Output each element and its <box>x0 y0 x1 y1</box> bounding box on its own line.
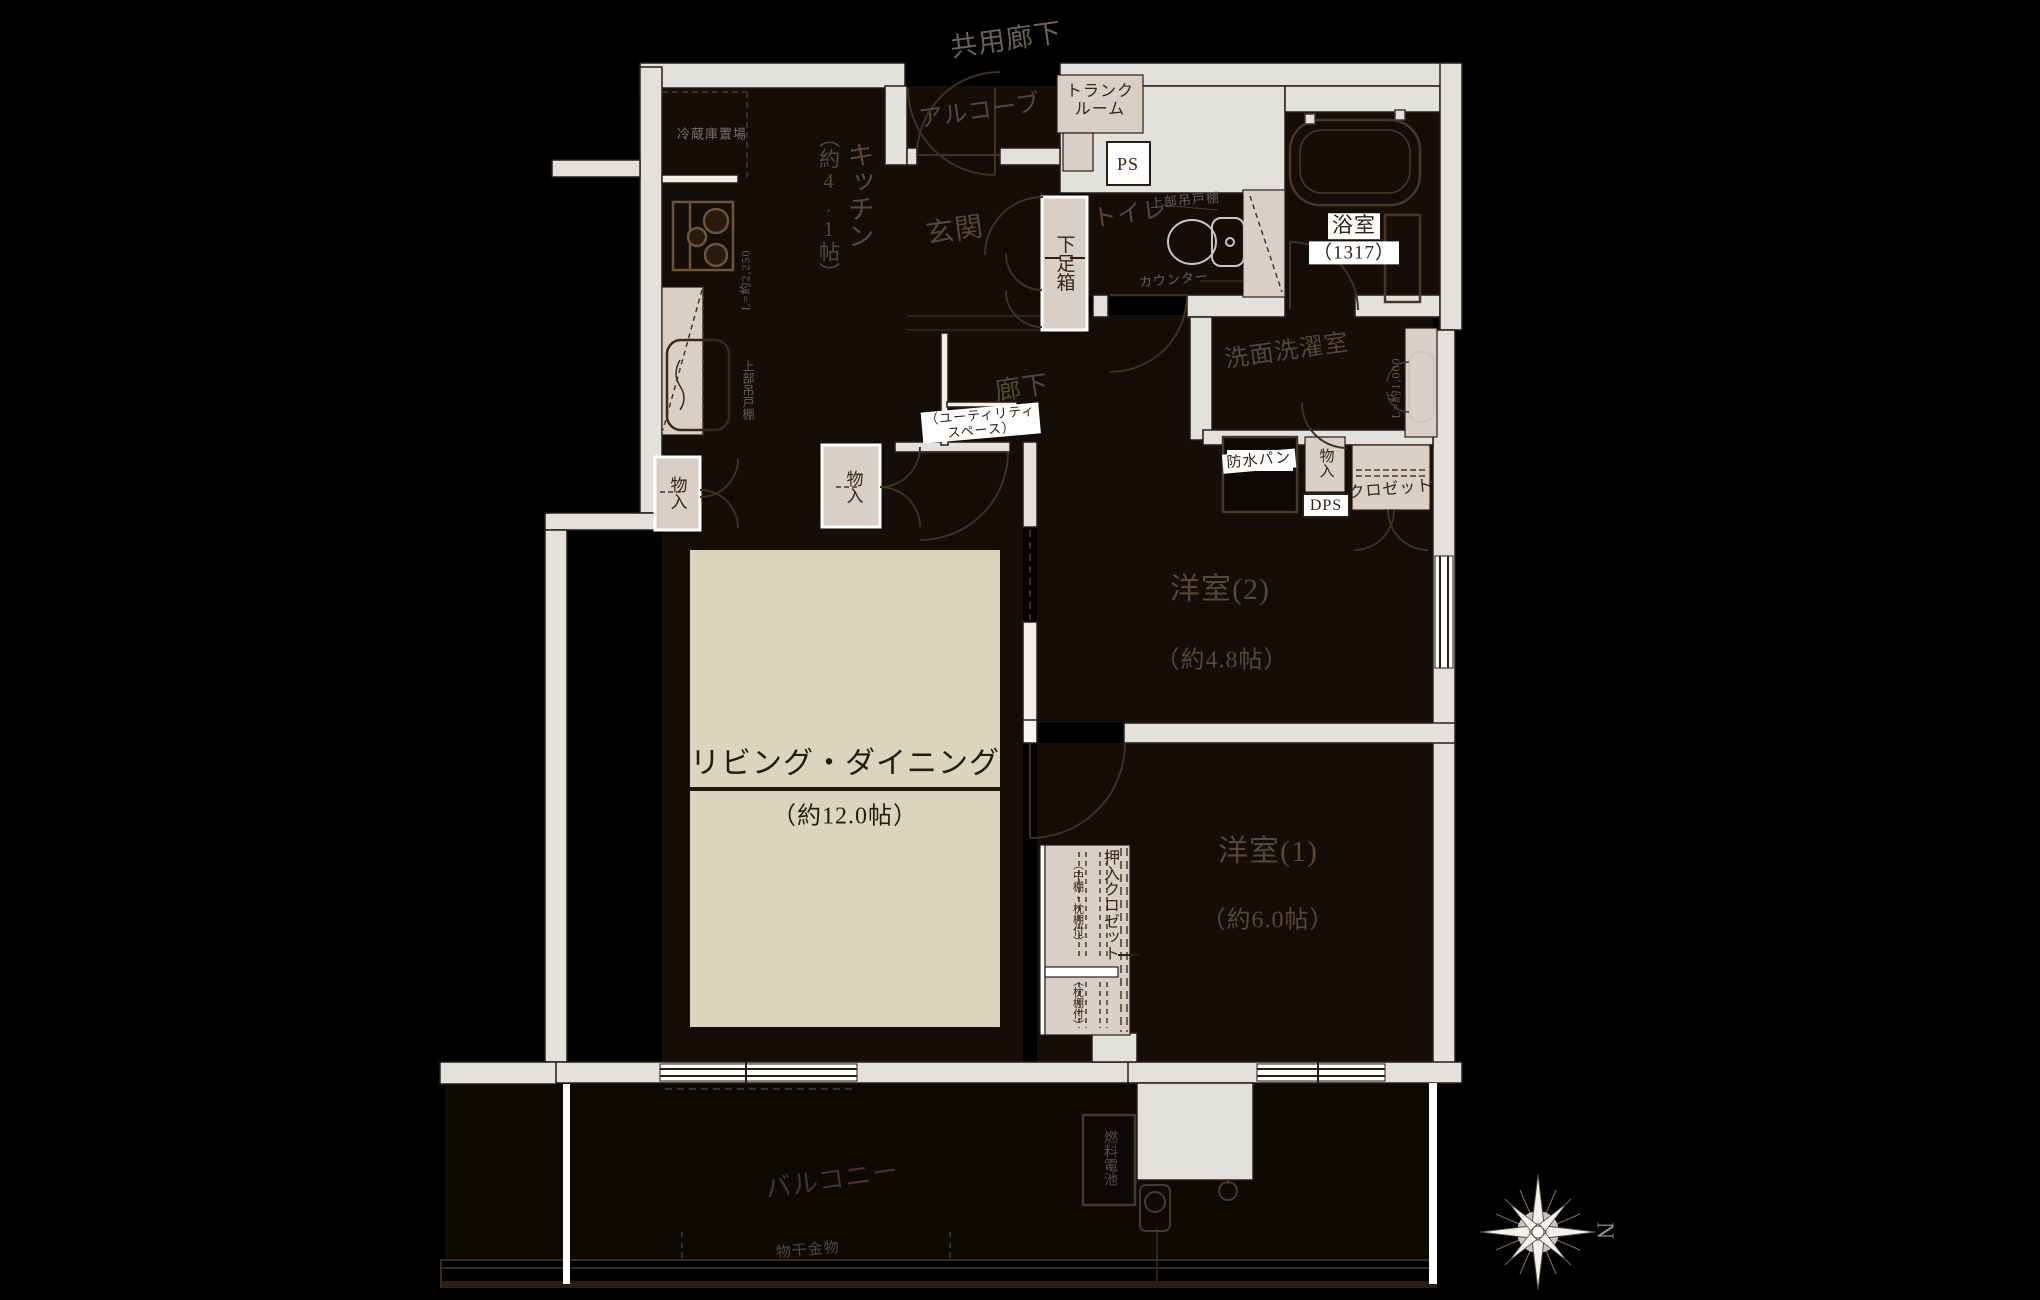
kitchen-upper-cabinet-label: 上部吊戸棚 <box>742 360 754 420</box>
kitchen-label: キッチン <box>845 141 872 249</box>
western1-label: 洋室(1) <box>1218 835 1318 869</box>
floorplan-page: 共用廊下 アルコーブ トランク ルーム PS 冷蔵庫置場 キッチン （約4.1帖… <box>0 0 2040 1300</box>
kitchen-size-label: （約4.1帖） <box>818 127 839 283</box>
futon-closet-note-label: （中棚・枕棚付） <box>1072 859 1083 947</box>
bathroom-size-label: （1317） <box>1309 241 1399 264</box>
bathroom-label: 浴室 <box>1328 213 1380 239</box>
compass-north-label: N <box>1591 1222 1618 1240</box>
futon-closet-label: 押入クロゼット <box>1101 849 1117 961</box>
compass-rose-icon <box>1480 1174 1596 1290</box>
kitchen-counter-length-label: L=約2,250 <box>739 249 752 310</box>
dps-label: DPS <box>1310 497 1342 515</box>
trunk-room-label: トランク ルーム <box>1066 83 1134 119</box>
living-label: リビング・ダイニング <box>690 747 1000 781</box>
ps-label: PS <box>1117 154 1139 174</box>
western1-size-label: （約6.0帖） <box>1202 908 1335 935</box>
western2-label: 洋室(2) <box>1170 573 1270 607</box>
western2-size-label: （約4.8帖） <box>1156 648 1289 675</box>
floorplan-graphics <box>0 0 2040 1300</box>
pillow-shelf-label: （枕棚付） <box>1072 976 1083 1031</box>
fuel-cell-label: 燃料電池 <box>1102 1130 1116 1186</box>
living-size-label: （約12.0帖） <box>772 804 918 831</box>
storage-left-label: 物入 <box>669 476 686 510</box>
shoe-box-label: 下足箱 <box>1055 235 1074 292</box>
vanity-length-label: L=約1,000 <box>1389 357 1402 418</box>
storage-center-label: 物入 <box>845 470 862 504</box>
storage-washroom-label: 物入 <box>1318 448 1333 478</box>
refrigerator-space-label: 冷蔵庫置場 <box>677 128 747 143</box>
